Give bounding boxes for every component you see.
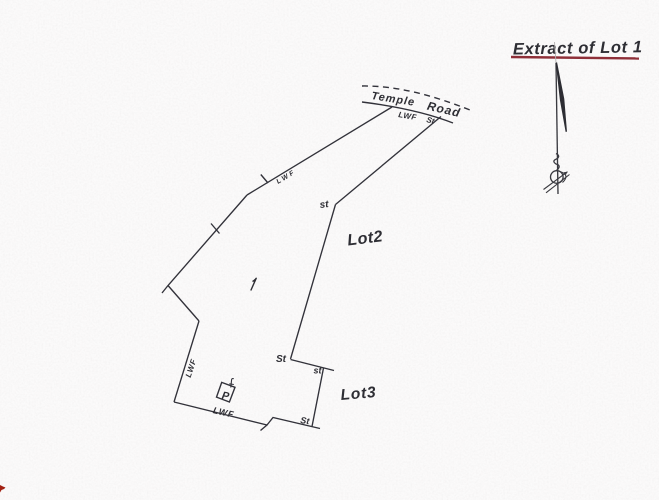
svg-text:Extract of Lot 1: Extract of Lot 1 [513, 38, 643, 58]
svg-text:St: St [276, 354, 287, 365]
svg-text:st: st [314, 366, 323, 376]
svg-text:Lot3: Lot3 [340, 384, 377, 404]
